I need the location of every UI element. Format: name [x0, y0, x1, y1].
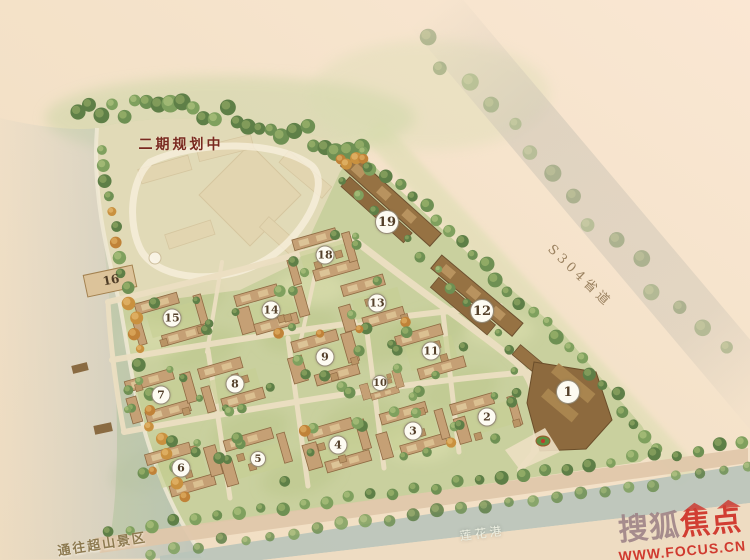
building-marker-9: 9 — [316, 348, 335, 367]
building-marker-12: 12 — [470, 299, 494, 323]
building-marker-5: 5 — [250, 451, 266, 467]
building-marker-3: 3 — [404, 422, 423, 441]
building-marker-11: 11 — [422, 342, 441, 361]
building-marker-10: 10 — [372, 375, 388, 391]
building-marker-14: 14 — [262, 301, 281, 320]
building-marker-15: 15 — [163, 309, 182, 328]
building-marker-13: 13 — [368, 294, 387, 313]
building-marker-19: 19 — [375, 210, 399, 234]
building-marker-8: 8 — [226, 375, 245, 394]
building-marker-1: 1 — [556, 380, 580, 404]
site-plan-canvas: 二期规划中 S304省道 通往超山景区 莲花港 1234567891011121… — [0, 0, 750, 560]
building-marker-6: 6 — [172, 459, 191, 478]
building-marker-2: 2 — [478, 408, 497, 427]
building-marker-7: 7 — [152, 386, 171, 405]
building-marker-18: 18 — [316, 246, 335, 265]
building-marker-4: 4 — [329, 436, 348, 455]
